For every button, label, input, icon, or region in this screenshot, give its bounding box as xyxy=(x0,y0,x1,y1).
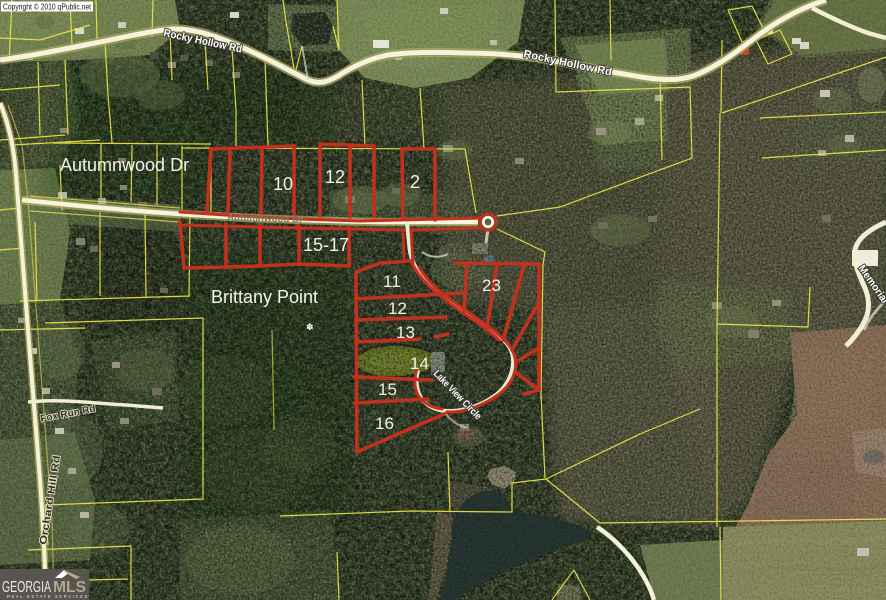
svg-text:12: 12 xyxy=(325,167,345,187)
svg-text:12: 12 xyxy=(388,299,407,318)
svg-text:Brittany Point: Brittany Point xyxy=(211,287,318,307)
svg-text:11: 11 xyxy=(383,272,401,291)
svg-text:✽: ✽ xyxy=(306,322,314,332)
svg-text:23: 23 xyxy=(482,276,501,295)
svg-text:15-17: 15-17 xyxy=(303,235,349,255)
svg-text:13: 13 xyxy=(396,323,415,342)
svg-text:2: 2 xyxy=(410,172,420,192)
svg-text:14: 14 xyxy=(410,354,429,373)
svg-text:Autumnwood Dr: Autumnwood Dr xyxy=(60,155,189,175)
svg-text:16: 16 xyxy=(375,414,394,433)
svg-text:10: 10 xyxy=(273,174,293,194)
svg-text:REAL ESTATE SERVICES: REAL ESTATE SERVICES xyxy=(7,594,89,599)
svg-text:Copyright © 2010 qPublic.net: Copyright © 2010 qPublic.net xyxy=(3,3,92,12)
svg-text:15: 15 xyxy=(378,380,397,399)
